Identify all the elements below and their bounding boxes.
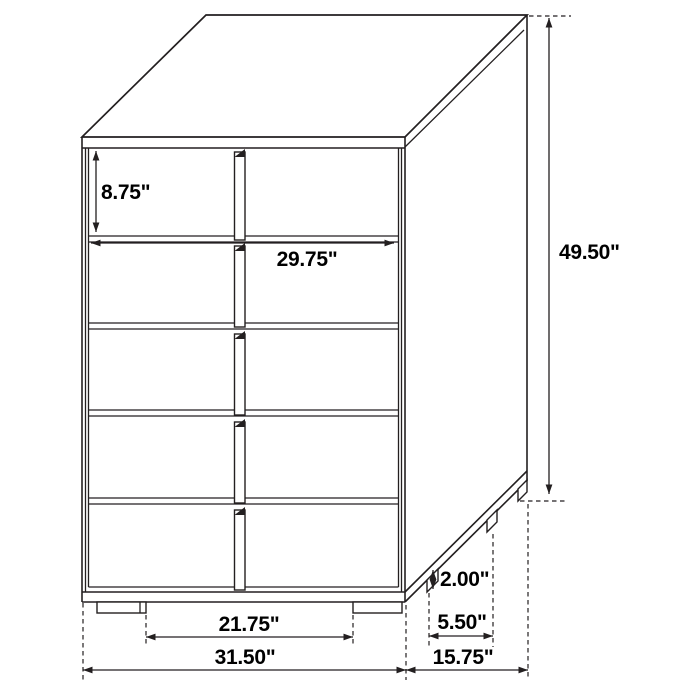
side-back-leg xyxy=(518,480,527,501)
front-right-leg xyxy=(353,602,402,613)
dimension-label: 31.50" xyxy=(215,646,276,669)
dimension-label: 8.75" xyxy=(101,181,150,204)
drawer-pull xyxy=(235,334,246,415)
side-middle-leg xyxy=(487,510,497,532)
chest-dimension-diagram: 8.75" 29.75" 49.50" 2.00" xyxy=(0,0,700,700)
drawer-pull xyxy=(235,422,246,503)
drawer-pull xyxy=(235,510,246,590)
drawer-pull xyxy=(235,152,246,240)
dimension-leg-height: 2.00" xyxy=(433,568,489,591)
dimension-label: 2.00" xyxy=(440,568,489,591)
drawer-pulls xyxy=(235,149,246,590)
front-left-leg xyxy=(97,602,146,613)
cabinet-top-face xyxy=(82,15,527,137)
dimension-diagram-page: 8.75" 29.75" 49.50" 2.00" xyxy=(0,0,700,700)
dimension-label: 29.75" xyxy=(277,248,338,271)
dimension-label: 15.75" xyxy=(433,646,494,669)
dimension-overall-height: 49.50" xyxy=(520,16,620,501)
dimension-top-drawer-height: 8.75" xyxy=(96,151,150,232)
dimension-label: 49.50" xyxy=(559,241,620,264)
drawer-pull xyxy=(235,246,246,327)
cabinet-drawing xyxy=(82,15,527,613)
dimension-front-leg-spacing: 21.75" xyxy=(146,613,353,647)
dimension-label: 5.50" xyxy=(437,611,486,634)
dimension-label: 21.75" xyxy=(219,613,280,636)
